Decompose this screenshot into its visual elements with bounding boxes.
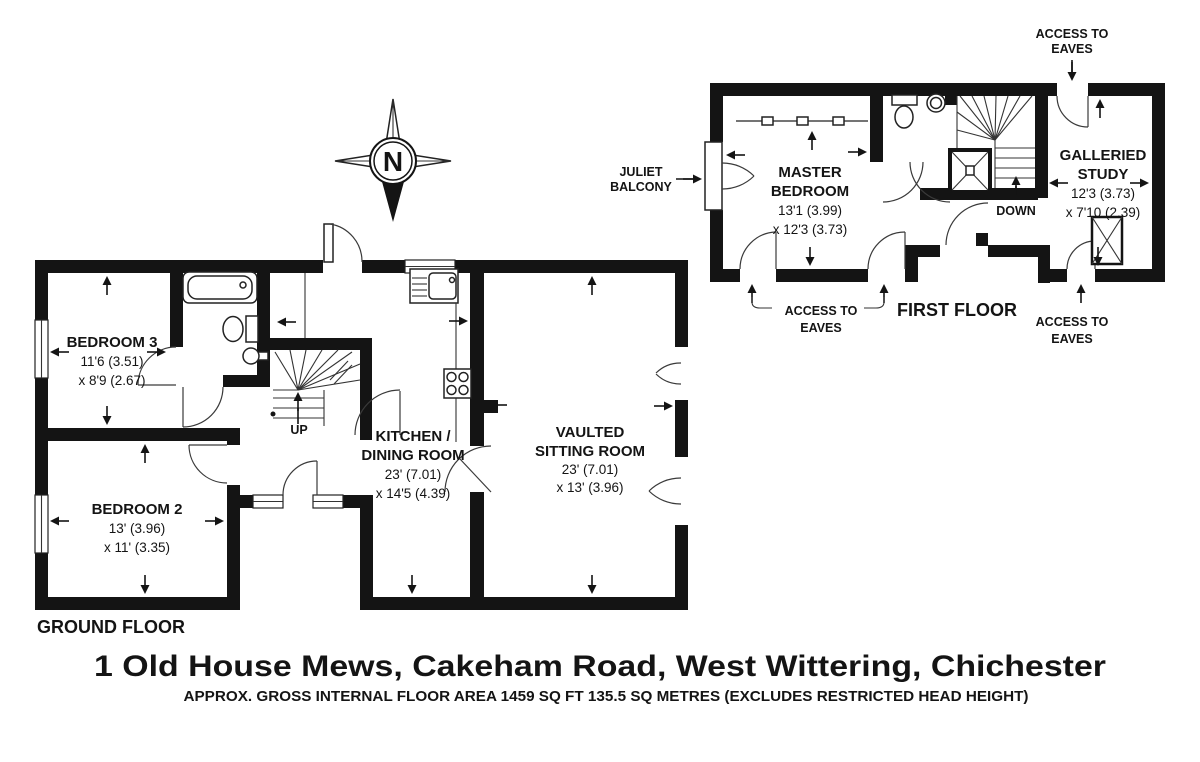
- master-name-line1: MASTER: [778, 164, 842, 181]
- study-name-line1: GALLERIED: [1060, 147, 1147, 164]
- eaves-right-line2: EAVES: [1051, 332, 1092, 346]
- sitting-dim2: x 13' (3.96): [556, 480, 623, 495]
- front-door-leaf-icon: [324, 224, 333, 262]
- stairs-down-label: DOWN: [996, 204, 1036, 218]
- eaves-left-line1: ACCESS TO: [785, 304, 858, 318]
- juliet-balcony-line2: BALCONY: [610, 180, 672, 194]
- basin-first-floor-icon: [927, 94, 945, 112]
- kitchen-name-line1: KITCHEN /: [376, 428, 452, 445]
- page-subtitle: APPROX. GROSS INTERNAL FLOOR AREA 1459 S…: [184, 688, 1029, 705]
- floorplan-drawing: BEDROOM 3 11'6 (3.51) x 8'9 (2.67) BEDRO…: [0, 0, 1200, 762]
- hob-icon: [444, 369, 471, 398]
- ground-floor-plan: BEDROOM 3 11'6 (3.51) x 8'9 (2.67) BEDRO…: [35, 224, 688, 637]
- kitchen-dim1: 23' (7.01): [385, 467, 442, 482]
- eaves-right-line1: ACCESS TO: [1036, 315, 1109, 329]
- study-dim2: x 7'10 (2.39): [1066, 205, 1141, 220]
- rooflight-study-icon: [1092, 217, 1122, 264]
- master-name-line2: BEDROOM: [771, 183, 849, 200]
- bedroom2-dim2: x 11' (3.35): [104, 540, 170, 555]
- kitchen-name-line2: DINING ROOM: [361, 447, 464, 464]
- ground-floor-title: GROUND FLOOR: [37, 617, 185, 637]
- master-dim1: 13'1 (3.99): [778, 203, 842, 218]
- bedroom2-dim1: 13' (3.96): [109, 521, 166, 536]
- bedroom3-name: BEDROOM 3: [67, 334, 158, 351]
- bedroom3-dim2: x 8'9 (2.67): [78, 373, 145, 388]
- staircase-up: [271, 350, 361, 426]
- floorplan-page: BEDROOM 3 11'6 (3.51) x 8'9 (2.67) BEDRO…: [0, 0, 1200, 762]
- juliet-balcony-line1: JULIET: [619, 165, 662, 179]
- sitting-name-line2: SITTING ROOM: [535, 443, 645, 460]
- kitchen-dim2: x 14'5 (4.39): [376, 486, 451, 501]
- first-floor-plan: MASTER BEDROOM 13'1 (3.99) x 12'3 (3.73)…: [610, 27, 1165, 346]
- sitting-name-line1: VAULTED: [556, 424, 625, 441]
- study-dim1: 12'3 (3.73): [1071, 186, 1135, 201]
- kitchen-sink-icon: [410, 269, 458, 303]
- first-floor-title: FIRST FLOOR: [897, 300, 1017, 320]
- page-title: 1 Old House Mews, Cakeham Road, West Wit…: [94, 650, 1106, 683]
- eaves-top-line1: ACCESS TO: [1036, 27, 1109, 41]
- wardrobe-line: [736, 117, 868, 125]
- compass-north-letter: N: [383, 146, 403, 177]
- toilet-icon: [223, 316, 258, 342]
- master-dim2: x 12'3 (3.73): [773, 222, 848, 237]
- juliet-door-leaf-icon: [705, 142, 722, 210]
- rooflight-stairwell-icon: [950, 150, 990, 192]
- eaves-top-line2: EAVES: [1051, 42, 1092, 56]
- study-name-line2: STUDY: [1078, 166, 1129, 183]
- stairs-up-label: UP: [290, 423, 307, 437]
- bedroom2-name: BEDROOM 2: [92, 501, 183, 518]
- compass-rose: N: [335, 99, 451, 222]
- bedroom3-dim1: 11'6 (3.51): [80, 354, 143, 369]
- eaves-left-line2: EAVES: [800, 321, 841, 335]
- sitting-dim1: 23' (7.01): [562, 462, 619, 477]
- toilet-first-floor-icon: [892, 95, 917, 128]
- bathtub-icon: [183, 272, 257, 303]
